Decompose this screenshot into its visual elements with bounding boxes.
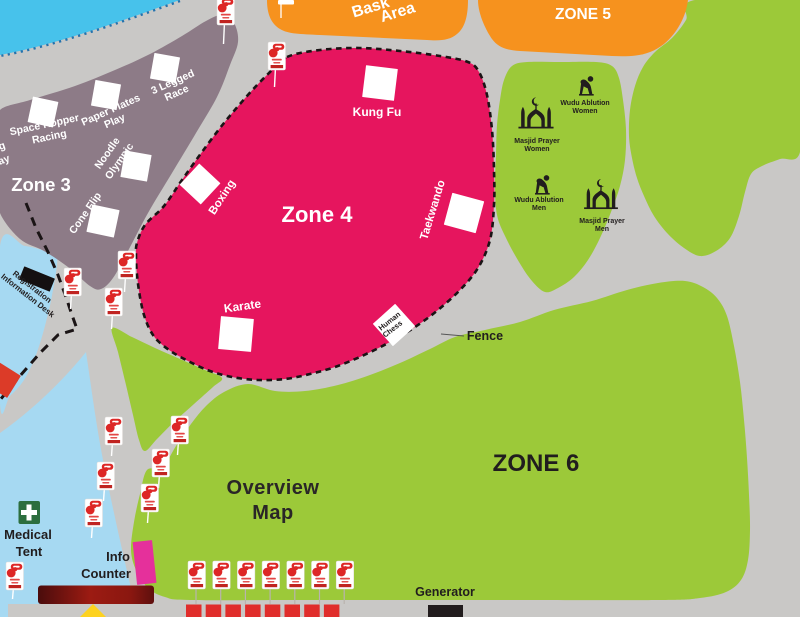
svg-text:Zone 4: Zone 4 xyxy=(282,202,354,227)
svg-text:Wudu Ablution: Wudu Ablution xyxy=(560,100,609,107)
svg-text:Masjid Prayer: Masjid Prayer xyxy=(579,218,625,225)
svg-text:ZONE 6: ZONE 6 xyxy=(493,450,580,477)
svg-text:Women: Women xyxy=(572,108,597,115)
svg-text:Counter: Counter xyxy=(81,566,131,581)
svg-text:Generator: Generator xyxy=(415,585,475,599)
svg-text:Info: Info xyxy=(106,549,130,564)
svg-text:Kung Fu: Kung Fu xyxy=(353,105,402,119)
svg-text:Women: Women xyxy=(524,146,549,153)
svg-text:Map: Map xyxy=(252,502,294,524)
svg-text:Fence: Fence xyxy=(467,329,503,343)
svg-text:Men: Men xyxy=(532,205,546,212)
svg-text:Medical: Medical xyxy=(4,527,52,542)
svg-text:Men: Men xyxy=(595,226,609,233)
svg-text:Zone 3: Zone 3 xyxy=(11,174,71,195)
svg-text:Wudu Ablution: Wudu Ablution xyxy=(514,197,563,204)
svg-text:Tent: Tent xyxy=(16,544,43,559)
svg-text:Masjid Prayer: Masjid Prayer xyxy=(514,138,560,145)
svg-text:Overview: Overview xyxy=(227,477,320,499)
svg-text:ZONE 5: ZONE 5 xyxy=(555,6,611,23)
